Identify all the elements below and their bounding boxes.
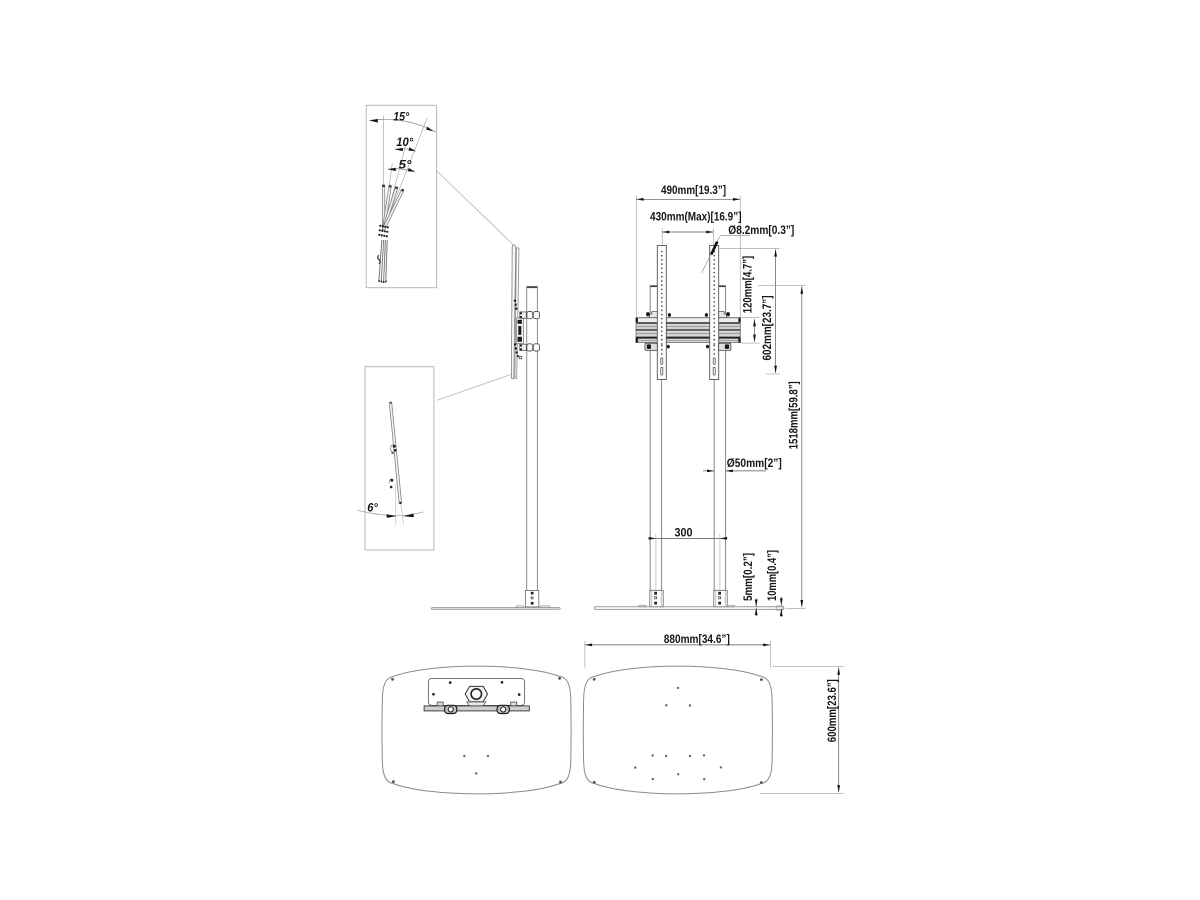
svg-text:602mm[23.7”]: 602mm[23.7”]: [760, 296, 774, 361]
svg-text:880mm[34.6”]: 880mm[34.6”]: [664, 632, 730, 646]
svg-text:Ø8.2mm[0.3”]: Ø8.2mm[0.3”]: [728, 223, 794, 237]
svg-text:1518mm[59.8”]: 1518mm[59.8”]: [787, 381, 801, 449]
svg-text:600mm[23.6”]: 600mm[23.6”]: [825, 679, 839, 742]
svg-text:Ø50mm[2”]: Ø50mm[2”]: [727, 456, 782, 470]
svg-text:120mm[4.7”]: 120mm[4.7”]: [740, 256, 754, 314]
svg-text:15°: 15°: [393, 109, 409, 123]
svg-text:6°: 6°: [367, 500, 378, 514]
svg-text:10mm[0.4”]: 10mm[0.4”]: [765, 550, 779, 601]
svg-text:5mm[0.2”]: 5mm[0.2”]: [741, 553, 755, 601]
svg-text:430mm(Max)[16.9”]: 430mm(Max)[16.9”]: [650, 209, 742, 223]
svg-text:490mm[19.3”]: 490mm[19.3”]: [661, 183, 726, 197]
svg-text:5°: 5°: [399, 157, 412, 171]
svg-text:10°: 10°: [396, 135, 413, 149]
svg-text:300: 300: [675, 526, 693, 540]
